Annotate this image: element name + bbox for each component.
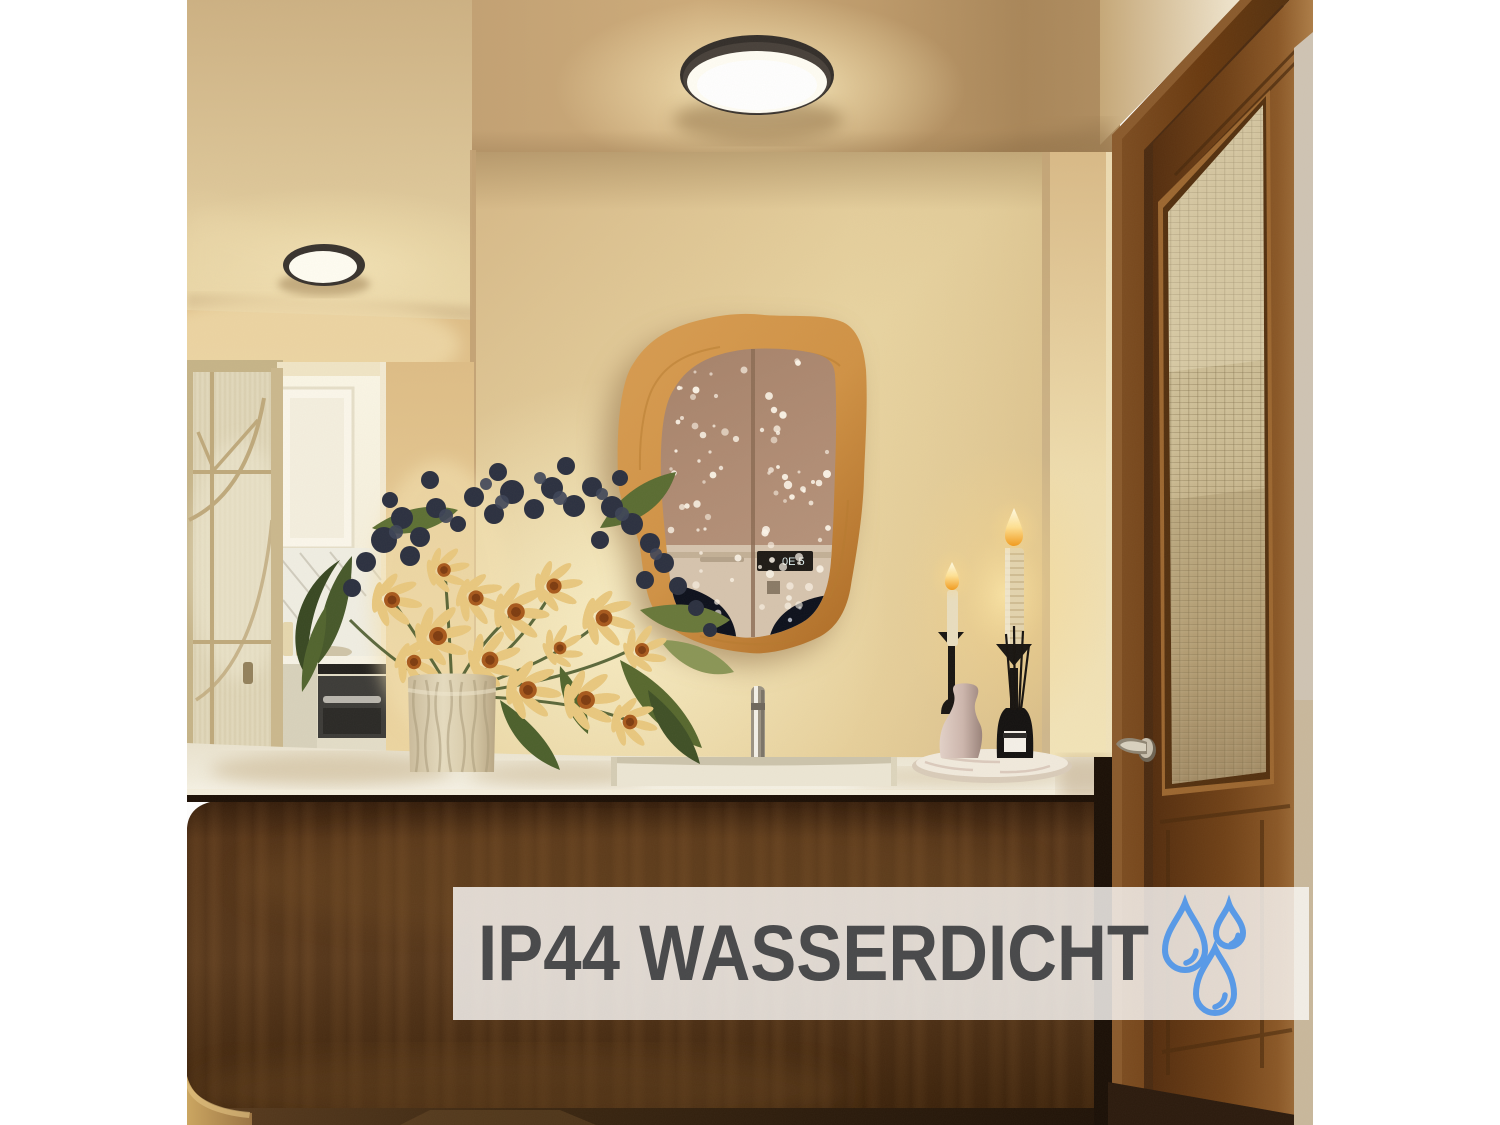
svg-text:IP44 WASSERDICHT: IP44 WASSERDICHT [478,908,1149,997]
